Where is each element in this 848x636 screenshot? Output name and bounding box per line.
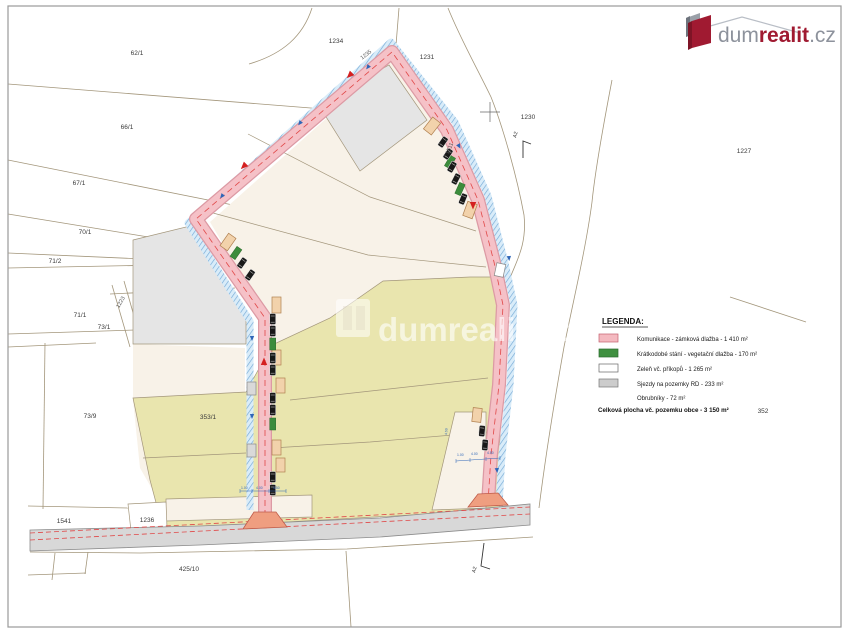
legend-label-zelen: Zeleň vč. příkopů - 1 265 m² [637, 366, 712, 373]
logo-icon-red-side [688, 21, 692, 50]
dim-right-rotated: 4.50 [444, 428, 449, 435]
parcel-label-353-1: 353/1 [200, 414, 217, 421]
parcel-label-352: 352 [758, 408, 769, 415]
parcel-label-70-1: 70/1 [79, 229, 92, 236]
legend-swatch-sjezdy [599, 379, 618, 387]
site-plan-canvas: A2 A2 1.00 4.00 4.50 1.00 4.00 4.50 4.50… [0, 0, 848, 636]
dim-left-2: 4.00 [256, 486, 263, 490]
parcel-label-1231: 1231 [420, 54, 435, 61]
legend-swatch-stani [599, 349, 618, 357]
parcel-label-67-1: 67/1 [73, 180, 86, 187]
watermark-text: dumrealit.cz [378, 311, 571, 348]
logo-text-dum: dum [718, 24, 759, 47]
legend-label-komunikace: Komunikace - zámková dlažba - 1 410 m² [637, 337, 748, 343]
parcel-label-425-10: 425/10 [179, 566, 199, 573]
legend-title: LEGENDA: [602, 317, 644, 326]
legend-total: Celková plocha vč. pozemku obce - 3 150 … [598, 407, 729, 414]
parcel-label-71-2: 71/2 [49, 258, 62, 265]
parcel-label-71-1: 71/1 [74, 312, 87, 319]
parcel-label-1541: 1541 [57, 518, 72, 525]
legend-label-obrubniky: Obrubníky - 72 m² [637, 396, 685, 402]
dim-right-2: 4.00 [471, 452, 478, 456]
parcel-label-1227: 1227 [737, 148, 752, 155]
logo-text-realit: realit [759, 24, 809, 47]
parcel-label-73-1: 73/1 [98, 324, 111, 331]
parcel-label-1234: 1234 [329, 38, 344, 45]
legend-label-stani: Krátkodobé stání - vegetační dlažba - 17… [637, 352, 757, 358]
parcel-label-62-1: 62/1 [131, 50, 144, 57]
legend-swatch-zelen [599, 364, 618, 372]
parcel-label-1230: 1230 [521, 114, 536, 121]
cream-patch-bottom [166, 495, 312, 521]
parcel-label-66-1: 66/1 [121, 124, 134, 131]
logo-text-cz: .cz [809, 24, 836, 47]
parcel-label-1236: 1236 [140, 517, 155, 524]
plan-page: A2 A2 1.00 4.00 4.50 1.00 4.00 4.50 4.50… [0, 0, 848, 636]
logo-wordmark: dumrealit.cz [718, 24, 836, 47]
dim-right-1: 1.00 [457, 453, 464, 457]
legend-label-sjezdy: Sjezdy na pozemky RD - 233 m² [637, 382, 723, 388]
legend-swatch-komunikace [599, 334, 618, 342]
parcel-label-73-9: 73/9 [84, 413, 97, 420]
dim-left-1: 1.00 [241, 486, 248, 490]
dim-right-3: 4.50 [487, 451, 494, 455]
dim-left-3: 4.50 [273, 486, 280, 490]
